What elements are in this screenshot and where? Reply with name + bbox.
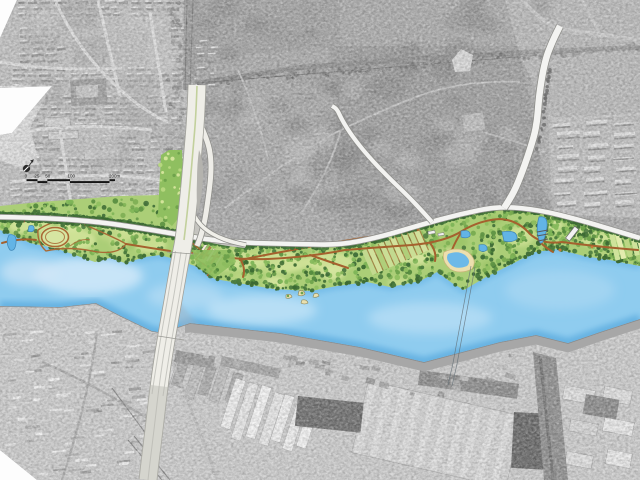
svg-text:100: 100 bbox=[68, 173, 76, 178]
svg-text:50: 50 bbox=[45, 173, 51, 178]
svg-text:25: 25 bbox=[34, 173, 40, 178]
svg-text:200m: 200m bbox=[109, 173, 121, 178]
